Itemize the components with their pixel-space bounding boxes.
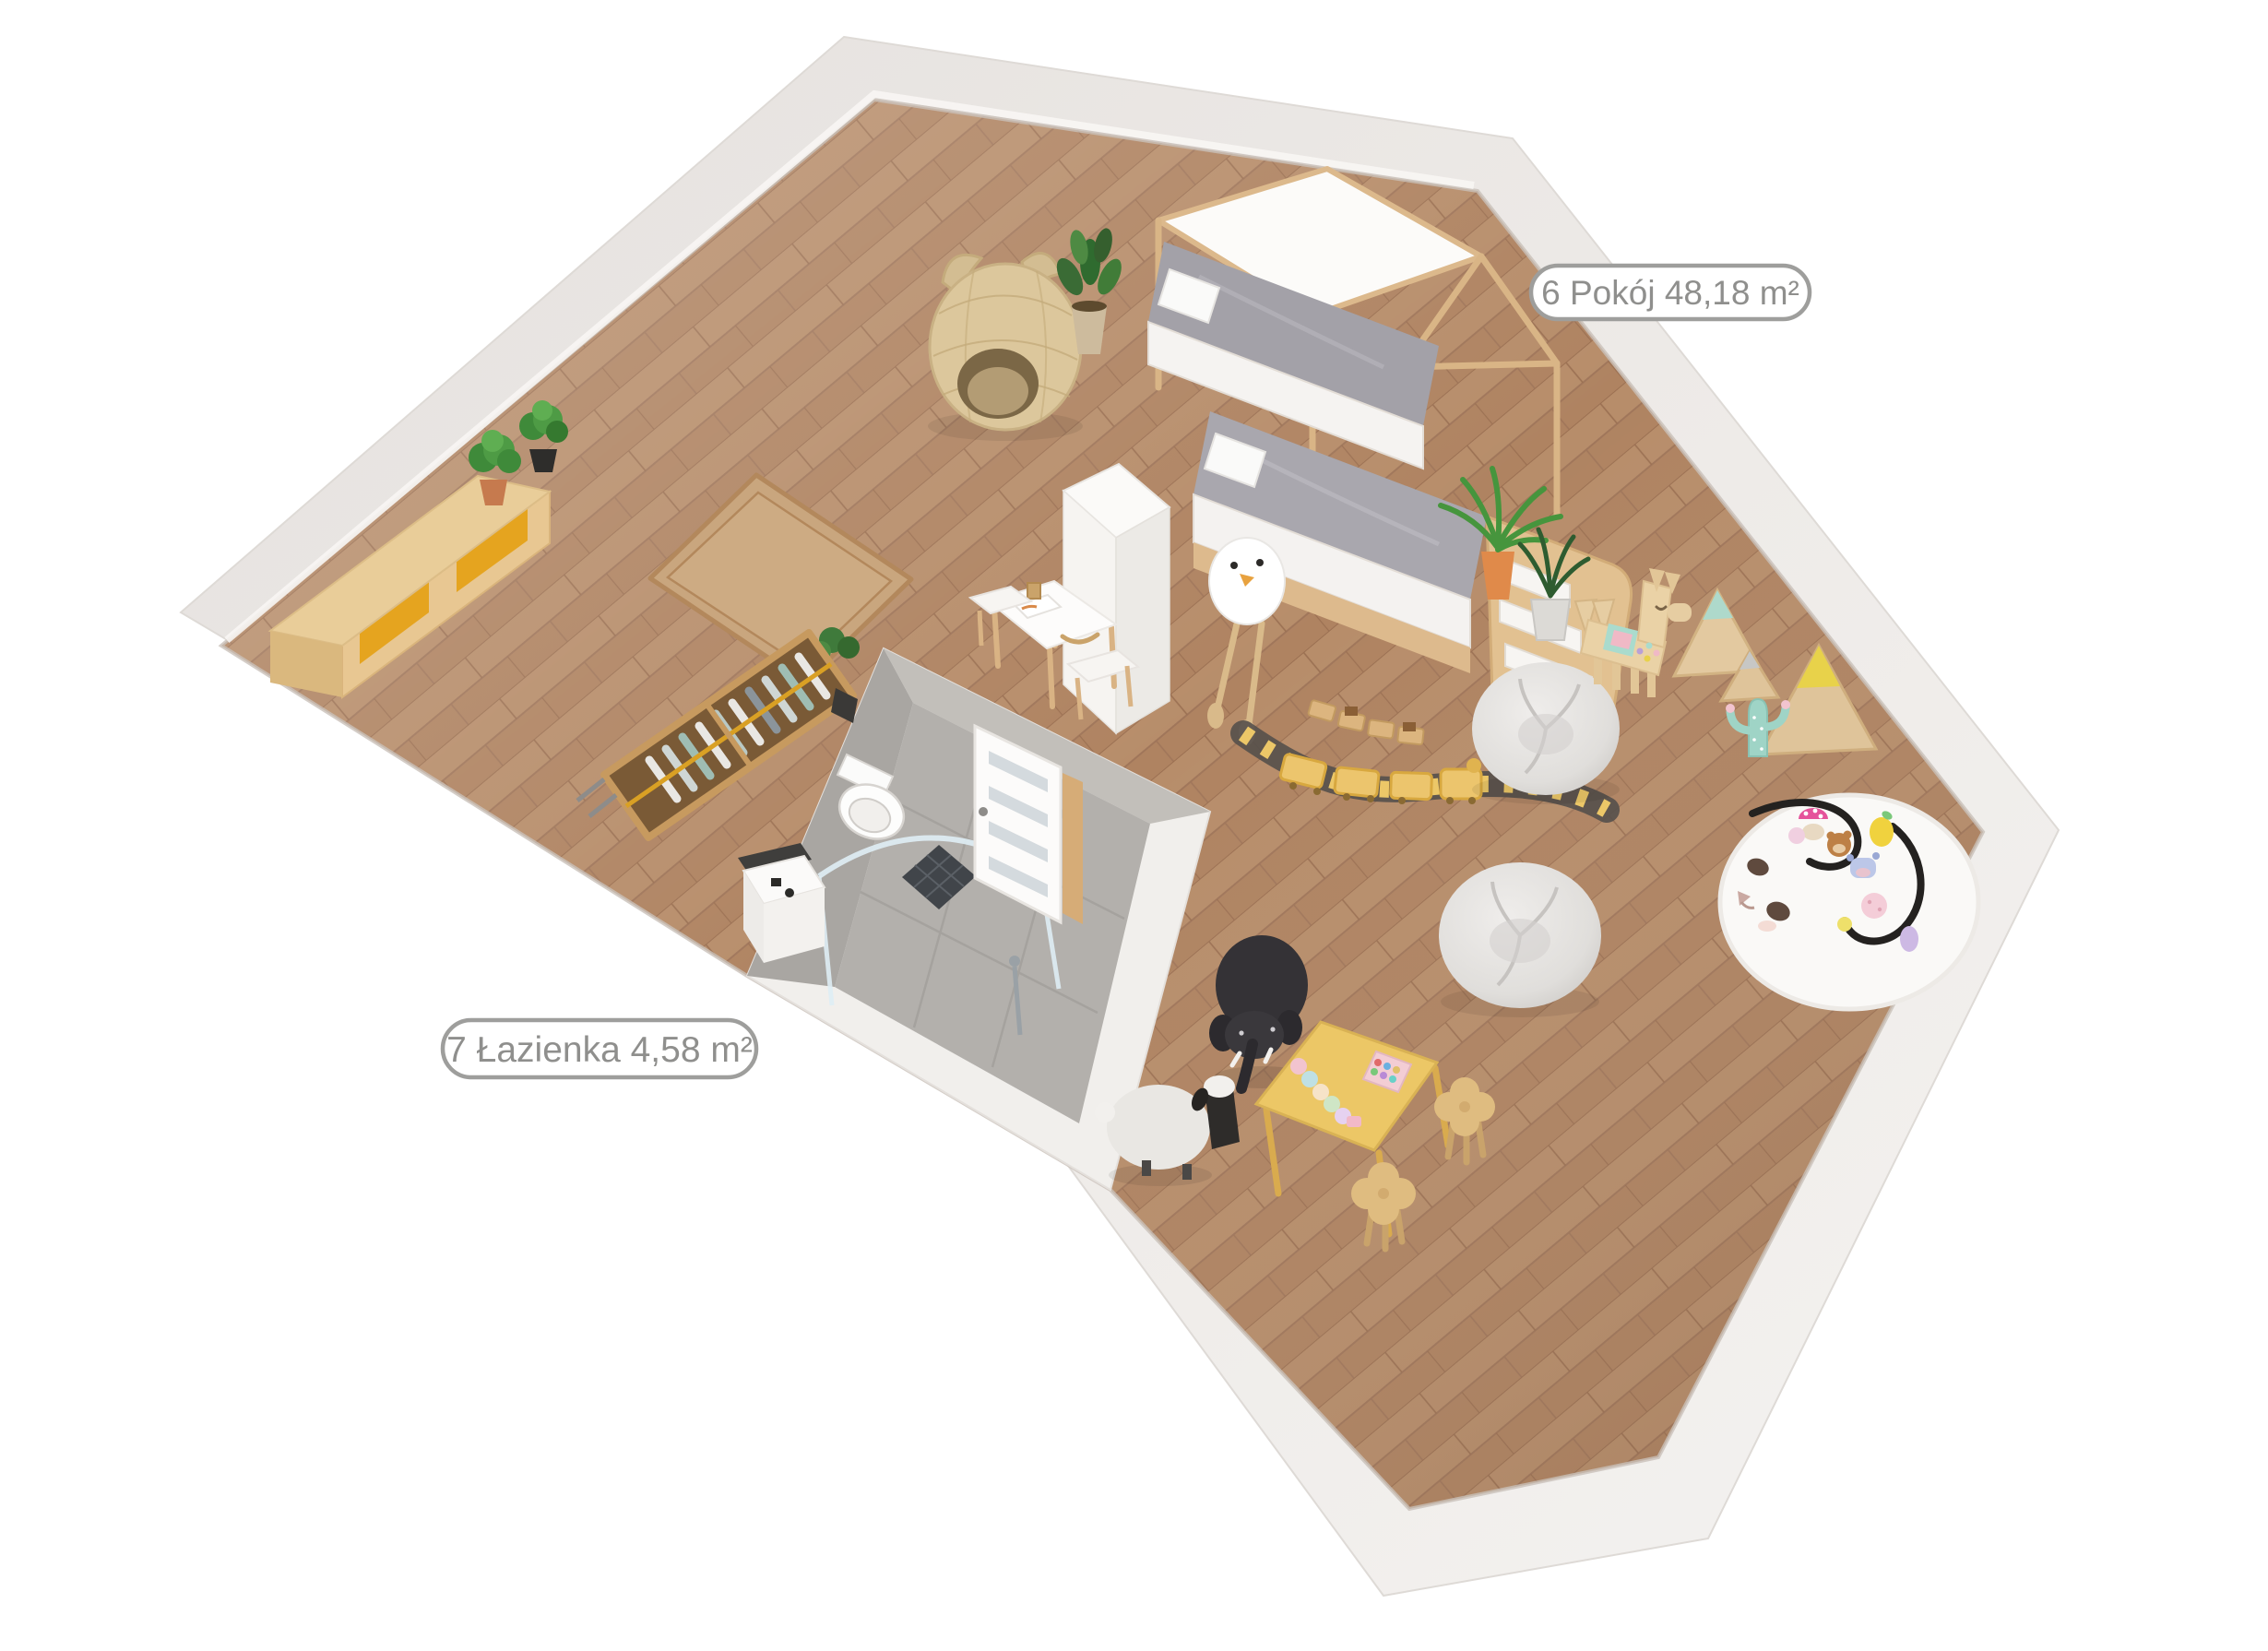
bathroom-label[interactable]: 7 Łazienka 4,58 m² xyxy=(443,1020,756,1077)
door-handle xyxy=(979,807,988,816)
door-side-board xyxy=(1063,773,1083,924)
floorplan-render: 6 Pokój 48,18 m² 7 Łazienka 4,58 m² xyxy=(0,0,2268,1651)
bean-bag-2 xyxy=(1439,862,1601,1017)
llama-snout xyxy=(1668,603,1692,622)
bunny-rug xyxy=(1720,795,1978,1009)
room-label-text: 6 Pokój 48,18 m² xyxy=(1541,274,1799,312)
train-chimney xyxy=(1466,758,1481,773)
bunny-plush xyxy=(1900,926,1918,952)
lemon-plush xyxy=(1837,917,1852,932)
ball-plush xyxy=(1861,893,1887,919)
toy-robot xyxy=(1027,583,1040,599)
pear-plush xyxy=(1870,817,1894,847)
sheep-tail xyxy=(1095,1102,1115,1122)
floorplan-stage: 6 Pokój 48,18 m² 7 Łazienka 4,58 m² xyxy=(0,0,2268,1651)
room-label[interactable]: 6 Pokój 48,18 m² xyxy=(1531,266,1810,319)
bathroom-label-text: 7 Łazienka 4,58 m² xyxy=(446,1030,753,1070)
